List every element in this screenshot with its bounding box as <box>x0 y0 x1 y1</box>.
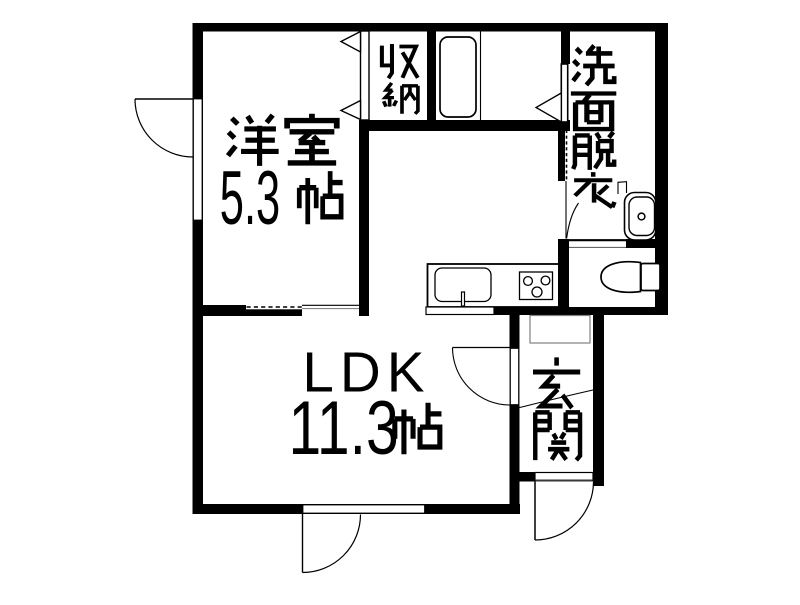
svg-text:5.3: 5.3 <box>220 156 280 241</box>
svg-text:11.3: 11.3 <box>289 386 399 471</box>
